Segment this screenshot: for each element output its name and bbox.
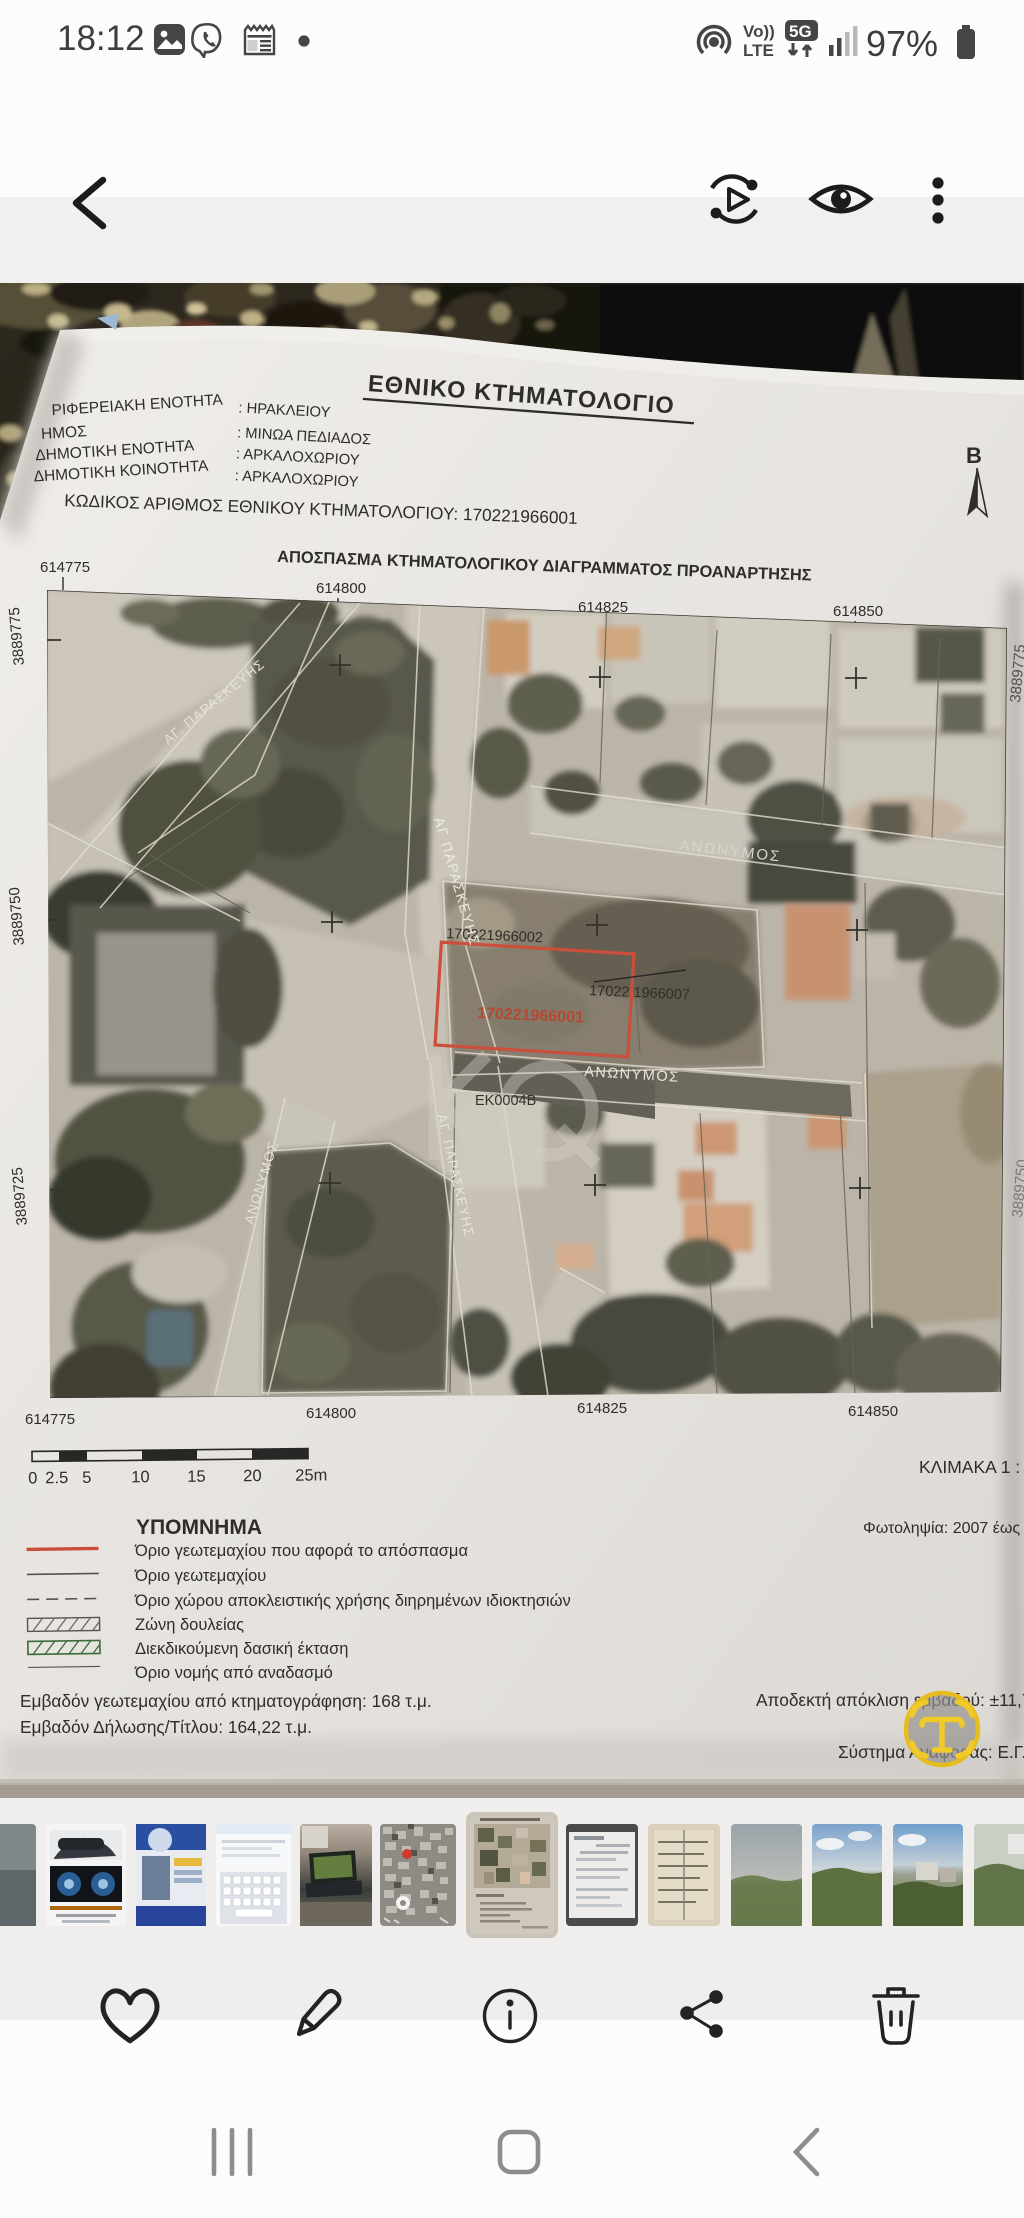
svg-text:97%: 97% [866,23,938,62]
svg-text:5G: 5G [789,22,812,41]
svg-text:ΚΛΙΜΑΚΑ 1 :: ΚΛΙΜΑΚΑ 1 : [919,1457,1020,1477]
svg-text:Αποδεκτή απόκλιση εμβαδού: ±11: Αποδεκτή απόκλιση εμβαδού: ±11,74 [756,1690,1024,1710]
svg-text:0: 0 [28,1469,37,1487]
svg-text:Ζώνη δουλείας: Ζώνη δουλείας [135,1616,244,1634]
svg-text:20: 20 [243,1467,262,1485]
svg-text:ΥΠΟΜΝΗΜΑ: ΥΠΟΜΝΗΜΑ [136,1516,262,1539]
svg-text:Όριο γεωτεμαχίου: Όριο γεωτεμαχίου [134,1567,266,1585]
svg-text:Vo)): Vo)) [743,22,775,41]
svg-text:15: 15 [187,1468,206,1486]
svg-text:2.5: 2.5 [45,1469,68,1487]
svg-text:Εμβαδόν γεωτεμαχίου από κτηματ: Εμβαδόν γεωτεμαχίου από κτηματογράφηση: … [20,1691,432,1711]
svg-text:10: 10 [131,1468,150,1486]
svg-text:Όριο νομής από αναδασμό: Όριο νομής από αναδασμό [134,1664,333,1682]
svg-text:5: 5 [82,1469,91,1487]
svg-text:Φωτοληψία: 2007 έως 2: Φωτοληψία: 2007 έως 2 [863,1520,1024,1537]
svg-text:Διεκδικούμενη δασική έκταση: Διεκδικούμενη δασική έκταση [135,1640,348,1658]
svg-text:LTE: LTE [743,41,774,60]
svg-text:25m: 25m [295,1466,327,1484]
svg-text:Όριο γεωτεμαχίου που αφορά το: Όριο γεωτεμαχίου που αφορά το απόσπασμα [134,1542,468,1560]
svg-text:Όριο χώρου αποκλειστικής χρήση: Όριο χώρου αποκλειστικής χρήσης διηρημέν… [134,1592,571,1610]
svg-text:Εμβαδόν Δήλωσης/Τίτλου: 164,22: Εμβαδόν Δήλωσης/Τίτλου: 164,22 τ.μ. [20,1717,312,1737]
